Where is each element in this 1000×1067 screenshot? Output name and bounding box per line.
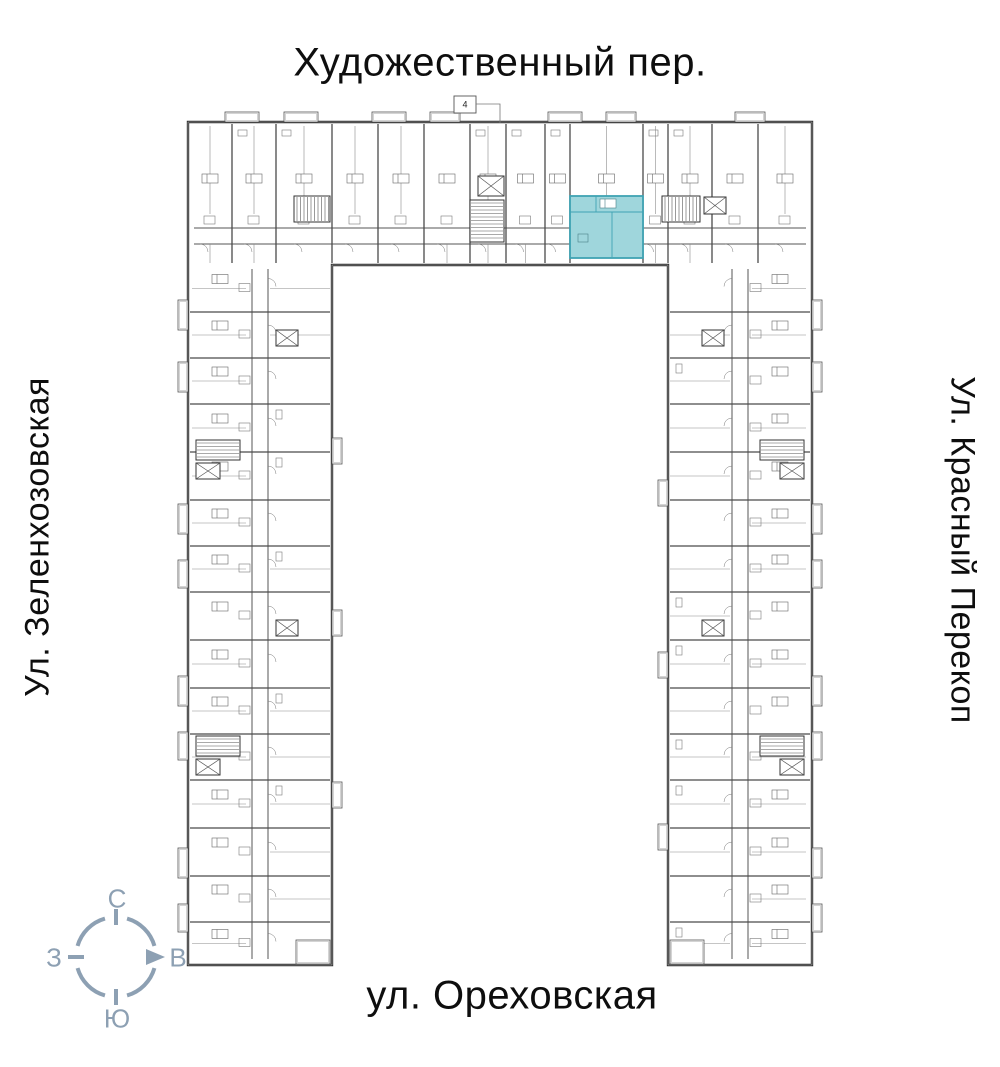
compass-east-label: В [169, 943, 186, 974]
compass-arrow-east [146, 949, 165, 965]
compass-ring [127, 968, 154, 995]
compass-north-label: С [108, 884, 127, 915]
compass-ring [78, 968, 105, 995]
site-plan-page: Художественный пер. ул. Ореховская Ул. З… [0, 0, 1000, 1067]
compass-west-label: З [46, 943, 62, 974]
compass-ring [127, 919, 154, 946]
compass [68, 909, 165, 1005]
compass-ring [78, 919, 105, 946]
compass-south-label: Ю [104, 1004, 130, 1035]
compass-icon [0, 0, 1000, 1067]
